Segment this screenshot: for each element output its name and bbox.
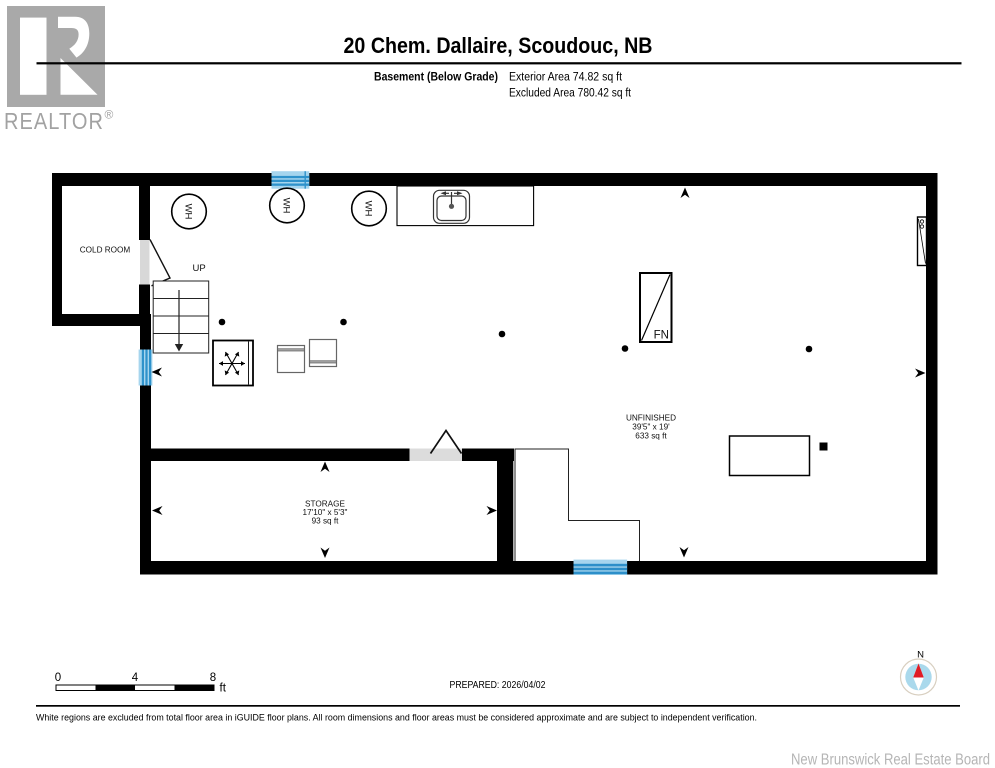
svg-text:UP: UP [193,263,206,274]
svg-text:Basement (Below Grade): Basement (Below Grade) [374,70,498,84]
svg-text:633 sq ft: 633 sq ft [635,432,667,441]
svg-text:ft: ft [220,683,227,695]
svg-text:20 Chem. Dallaire, Scoudouc, N: 20 Chem. Dallaire, Scoudouc, NB [344,33,653,58]
svg-text:New Brunswick Real Estate Boar: New Brunswick Real Estate Board [791,752,990,768]
svg-text:WH: WH [281,198,292,214]
svg-text:39'5" x 19': 39'5" x 19' [632,423,670,432]
svg-text:0: 0 [55,672,61,684]
svg-text:8: 8 [210,672,216,684]
svg-text:REALTOR: REALTOR [4,108,104,134]
svg-text:Excluded Area 780.42 sq ft: Excluded Area 780.42 sq ft [509,86,631,100]
svg-text:COLD ROOM: COLD ROOM [80,246,131,255]
svg-text:WH: WH [183,204,194,220]
svg-text:White regions are excluded fro: White regions are excluded from total fl… [36,713,757,723]
svg-text:PREPARED: 2026/04/02: PREPARED: 2026/04/02 [450,680,546,691]
svg-text:93 sq ft: 93 sq ft [312,516,340,525]
svg-text:UNFINISHED: UNFINISHED [626,414,676,423]
svg-text:4: 4 [132,672,139,684]
svg-text:WH: WH [363,201,374,217]
svg-text:FN: FN [654,330,669,342]
svg-text:Exterior Area 74.82 sq ft: Exterior Area 74.82 sq ft [509,70,622,84]
svg-text:®: ® [105,108,114,122]
